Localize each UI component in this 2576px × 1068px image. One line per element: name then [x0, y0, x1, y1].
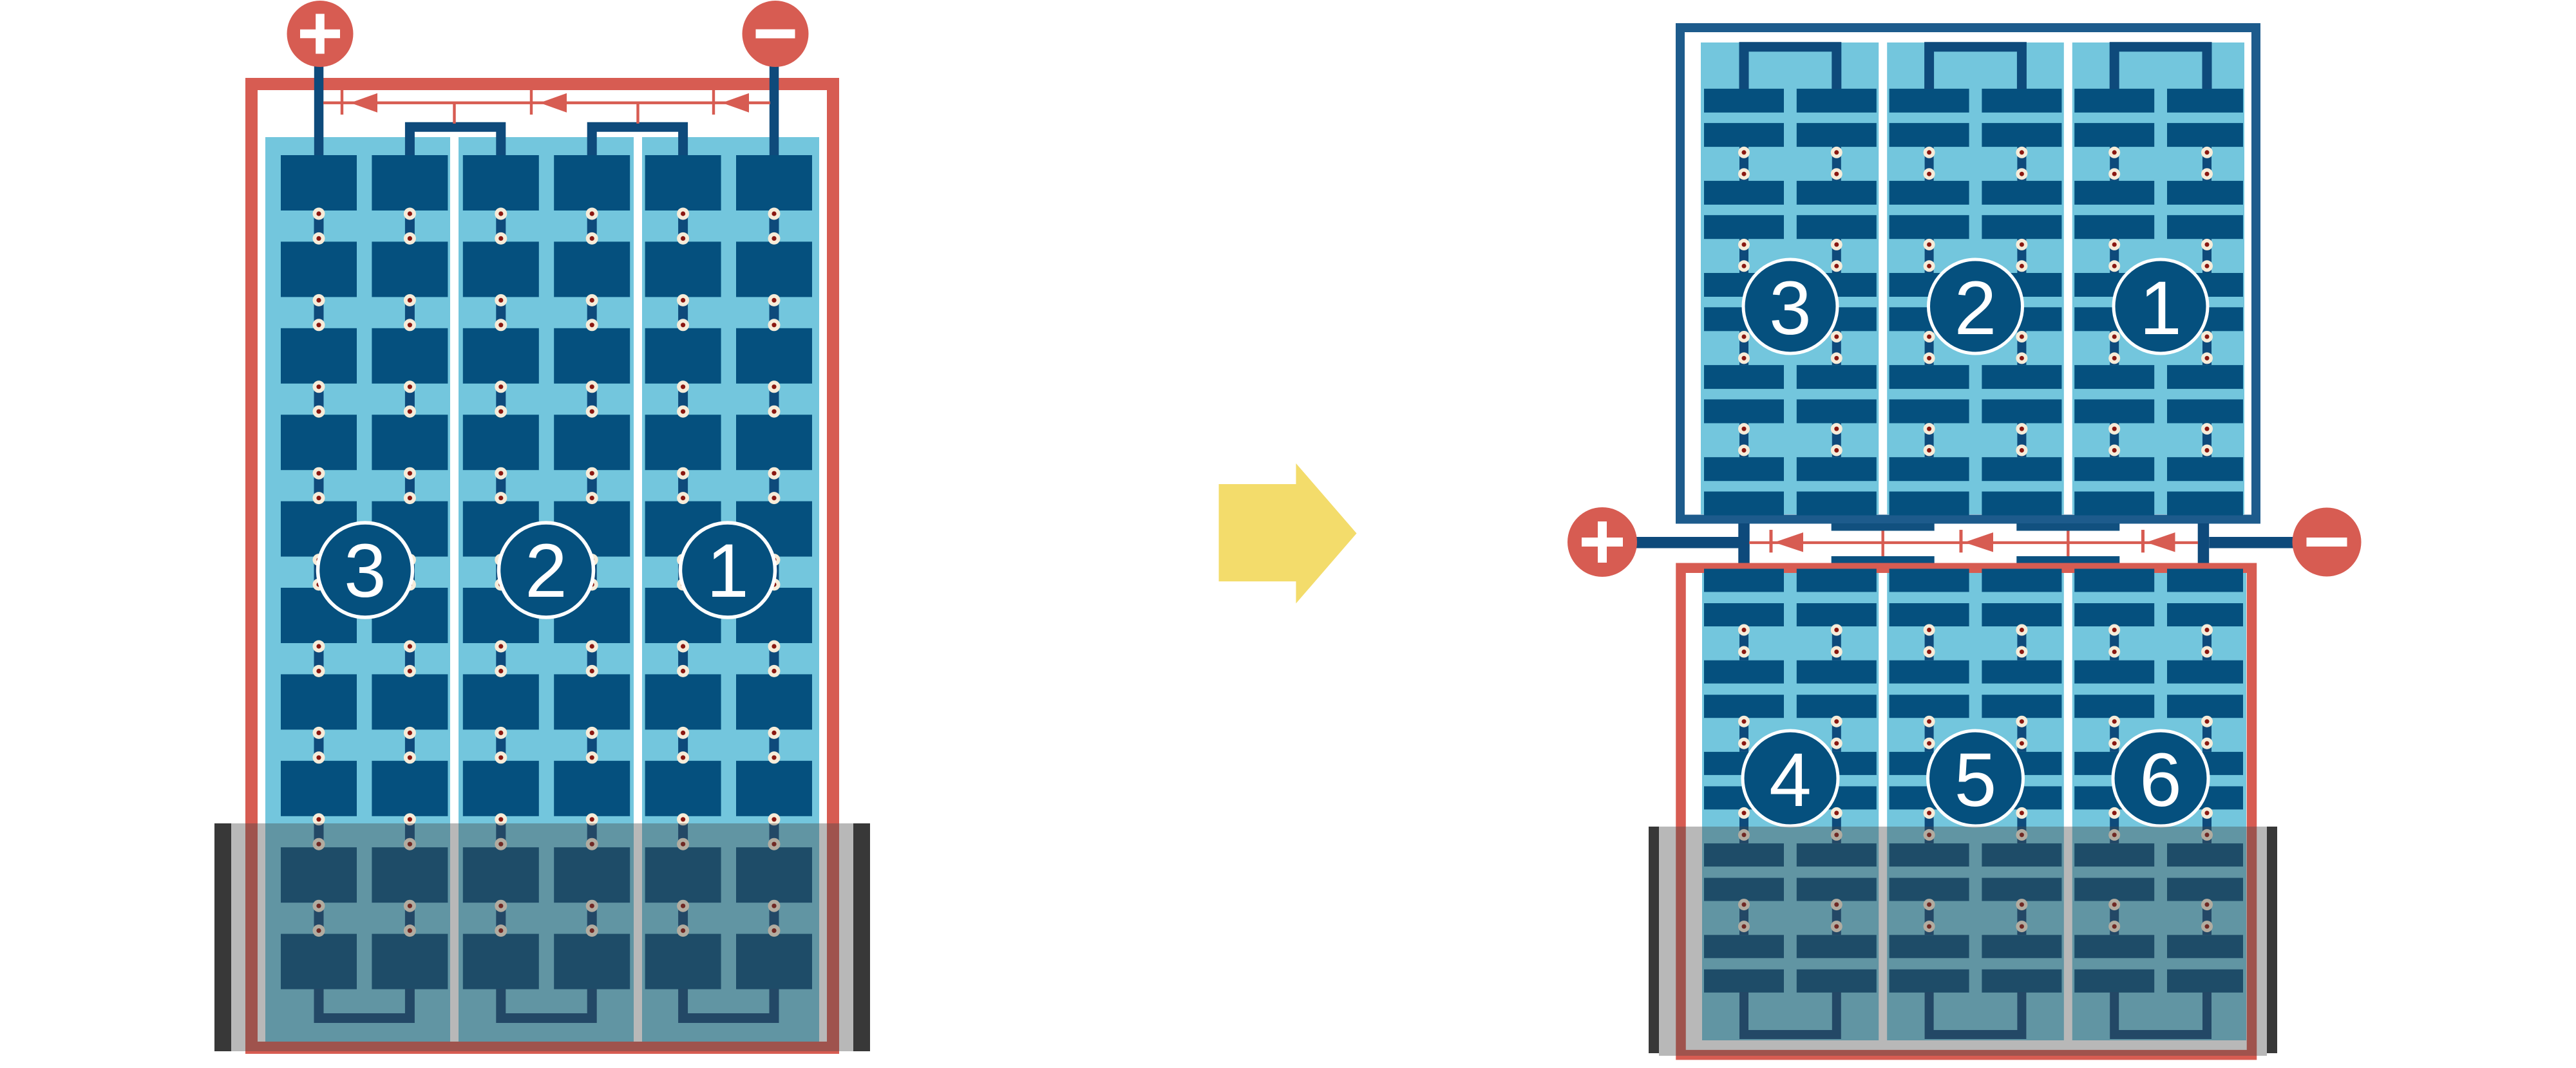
svg-text:2: 2 — [525, 529, 567, 614]
svg-text:1: 1 — [2139, 266, 2182, 351]
svg-text:6: 6 — [2139, 738, 2182, 823]
svg-text:5: 5 — [1955, 738, 1997, 823]
svg-text:3: 3 — [344, 529, 386, 614]
svg-text:3: 3 — [1769, 266, 1812, 351]
svg-text:2: 2 — [1955, 266, 1997, 351]
svg-text:4: 4 — [1769, 738, 1812, 823]
svg-text:1: 1 — [706, 529, 749, 614]
